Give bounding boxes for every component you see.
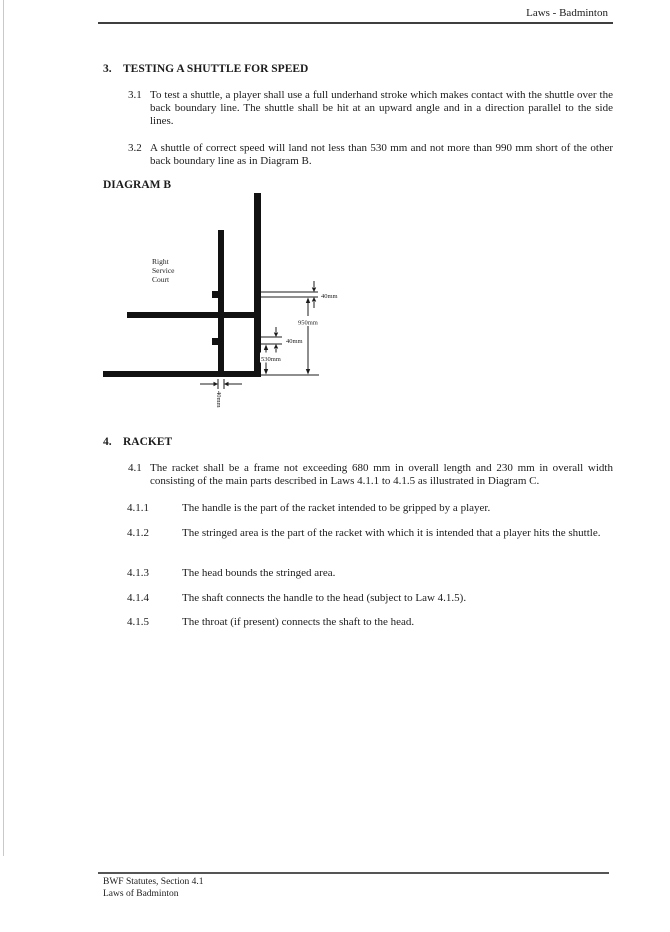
law-item-4-1-5: 4.1.5 The throat (if present) connects t… xyxy=(127,616,613,629)
dim-label-bottom-40mm: 40mm xyxy=(215,391,222,408)
dimension-bottom-40mm: 40mm xyxy=(200,379,242,408)
court-label-line-3: Court xyxy=(152,275,170,284)
footer-line-1: BWF Statutes, Section 4.1 xyxy=(103,876,204,888)
law-item-4-1-2: 4.1.2 The stringed area is the part of t… xyxy=(127,527,613,540)
section-4-number: 4. xyxy=(103,436,123,449)
centre-line xyxy=(127,312,261,318)
law-item-3-1: 3.1 To test a shuttle, a player shall us… xyxy=(128,89,613,128)
law-item-4-1-3: 4.1.3 The head bounds the stringed area. xyxy=(127,567,613,580)
law-item-4-1-4-number: 4.1.4 xyxy=(127,592,182,605)
law-item-4-1-number: 4.1 xyxy=(128,462,150,488)
law-item-3-2: 3.2 A shuttle of correct speed will land… xyxy=(128,142,613,168)
header-rule xyxy=(98,22,613,24)
dimension-top-40mm: 40mm xyxy=(261,281,338,308)
footer-text: BWF Statutes, Section 4.1 Laws of Badmin… xyxy=(103,876,204,900)
section-4-title: RACKET xyxy=(123,436,172,449)
law-item-3-1-number: 3.1 xyxy=(128,89,150,128)
law-item-4-1-1: 4.1.1 The handle is the part of the rack… xyxy=(127,502,613,515)
back-boundary-line xyxy=(254,193,261,377)
header-title: Laws - Badminton xyxy=(98,7,608,19)
diagram-b-figure: Right Service Court 40mm 950mm xyxy=(95,188,365,418)
side-line xyxy=(103,371,261,377)
law-item-4-1-3-text: The head bounds the stringed area. xyxy=(182,567,335,580)
court-label-line-1: Right xyxy=(152,257,170,266)
law-item-4-1-4-text: The shaft connects the handle to the hea… xyxy=(182,592,466,605)
law-item-3-1-text: To test a shuttle, a player shall use a … xyxy=(150,89,613,128)
dimension-950mm: 950mm xyxy=(297,298,324,375)
law-item-4-1-text: The racket shall be a frame not exceedin… xyxy=(150,462,613,488)
dim-label-950mm: 950mm xyxy=(298,320,318,327)
test-mark-lower xyxy=(212,338,218,345)
dimension-530mm: 530mm xyxy=(260,345,286,375)
test-mark-upper xyxy=(212,291,218,298)
long-service-line xyxy=(218,230,224,377)
section-3-number: 3. xyxy=(103,63,123,76)
law-item-4-1-2-text: The stringed area is the part of the rac… xyxy=(182,527,600,540)
court-label-line-2: Service xyxy=(152,266,175,275)
law-item-4-1-2-number: 4.1.2 xyxy=(127,527,182,540)
right-service-court-label: Right Service Court xyxy=(152,257,175,284)
footer-line-2: Laws of Badminton xyxy=(103,888,204,900)
court-lines xyxy=(103,193,261,377)
law-item-3-2-text: A shuttle of correct speed will land not… xyxy=(150,142,613,168)
law-item-4-1-3-number: 4.1.3 xyxy=(127,567,182,580)
law-item-4-1-5-number: 4.1.5 xyxy=(127,616,182,629)
dim-label-top-40mm: 40mm xyxy=(321,293,338,300)
section-3-heading: 3. TESTING A SHUTTLE FOR SPEED xyxy=(103,63,308,76)
law-item-4-1: 4.1 The racket shall be a frame not exce… xyxy=(128,462,613,488)
law-item-4-1-1-number: 4.1.1 xyxy=(127,502,182,515)
section-4-heading: 4. RACKET xyxy=(103,436,172,449)
dim-label-mid-40mm: 40mm xyxy=(286,338,303,345)
section-3-title: TESTING A SHUTTLE FOR SPEED xyxy=(123,63,308,76)
law-item-4-1-5-text: The throat (if present) connects the sha… xyxy=(182,616,414,629)
footer-rule xyxy=(98,872,609,874)
page-edge-shadow xyxy=(3,0,4,856)
document-page: Laws - Badminton 3. TESTING A SHUTTLE FO… xyxy=(0,0,670,932)
law-item-4-1-1-text: The handle is the part of the racket int… xyxy=(182,502,490,515)
law-item-3-2-number: 3.2 xyxy=(128,142,150,168)
dim-label-530mm: 530mm xyxy=(261,356,281,363)
law-item-4-1-4: 4.1.4 The shaft connects the handle to t… xyxy=(127,592,613,605)
